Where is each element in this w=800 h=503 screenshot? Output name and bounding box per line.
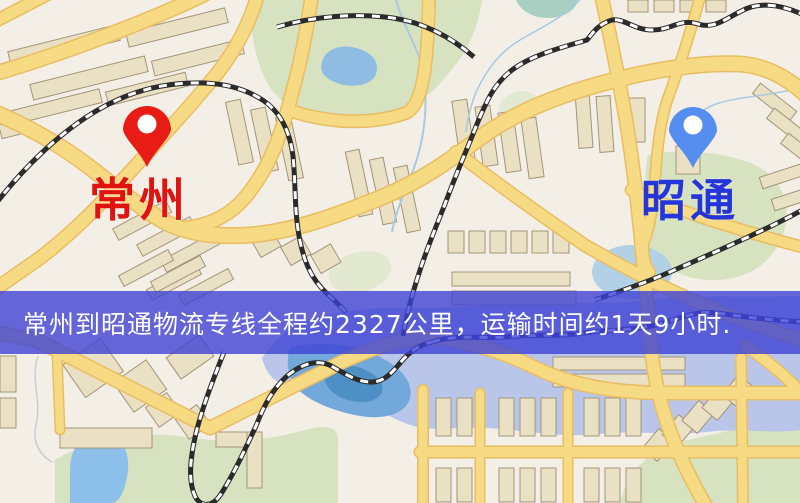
map-screenshot: 常州 昭通 常州到昭通物流专线全程约2327公里，运输时间约1天9小时. [0,0,800,503]
route-info-banner: 常州到昭通物流专线全程约2327公里，运输时间约1天9小时. [0,291,800,354]
zhaotong-city-label: 昭通 [641,178,739,223]
route-info-text: 常州到昭通物流专线全程约2327公里，运输时间约1天9小时. [0,305,731,341]
changzhou-city-label: 常州 [89,177,189,223]
map-canvas [0,0,800,503]
